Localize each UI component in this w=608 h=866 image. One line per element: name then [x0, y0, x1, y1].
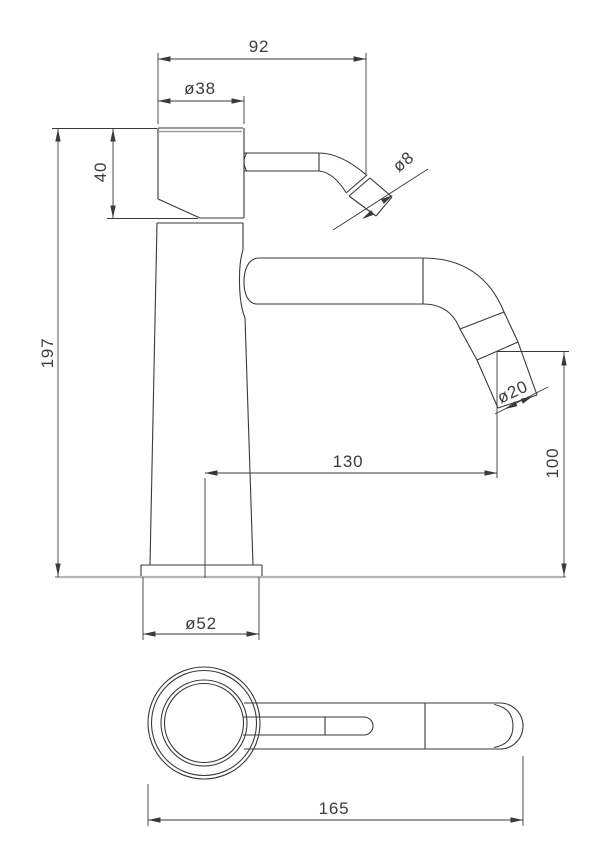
- dim-label-100: 100: [543, 448, 562, 479]
- dim-total-height: 197: [38, 128, 61, 577]
- lever-joint-band-2: [349, 178, 370, 196]
- dim-label-8: ø8: [389, 148, 418, 176]
- dim-label-165: 165: [319, 799, 350, 818]
- lever-top-view: [243, 717, 373, 735]
- dim-label-40: 40: [91, 162, 110, 183]
- dim-label-52: ø52: [185, 614, 217, 633]
- technical-drawing-canvas: 92 ø38 40 197: [0, 0, 608, 866]
- dim-label-92: 92: [249, 37, 270, 56]
- dim-spout-tip-diameter: ø20: [494, 377, 548, 414]
- dim-spout-reach: 130: [205, 352, 497, 578]
- faucet-dimension-drawing: 92 ø38 40 197: [0, 0, 608, 866]
- dim-cap-diameter: ø38: [158, 79, 244, 124]
- spout-end-inner-arc: [494, 705, 513, 748]
- base-circles: [148, 667, 260, 779]
- dim-label-197: 197: [38, 338, 57, 369]
- spout-ring-band-2: [477, 342, 518, 360]
- dim-label-130: 130: [333, 452, 364, 471]
- handle-cap: [158, 128, 244, 218]
- top-view: 165: [148, 667, 523, 826]
- spout: [244, 258, 537, 408]
- lever-rounded-end: [364, 717, 373, 735]
- spout-rounded-end: [500, 703, 523, 749]
- spout-top-view: [244, 703, 523, 749]
- dim-base-diameter: ø52: [143, 577, 259, 640]
- spout-neck-inner-curve: [244, 258, 258, 304]
- dim-label-38: ø38: [184, 79, 216, 98]
- front-view: 92 ø38 40 197: [38, 37, 569, 640]
- lever-joint-band-1: [346, 175, 367, 193]
- dim-lever-tip-diameter: ø8: [333, 148, 428, 230]
- dim-cap-height: 40: [52, 128, 198, 219]
- spout-ring-band-1: [460, 312, 504, 329]
